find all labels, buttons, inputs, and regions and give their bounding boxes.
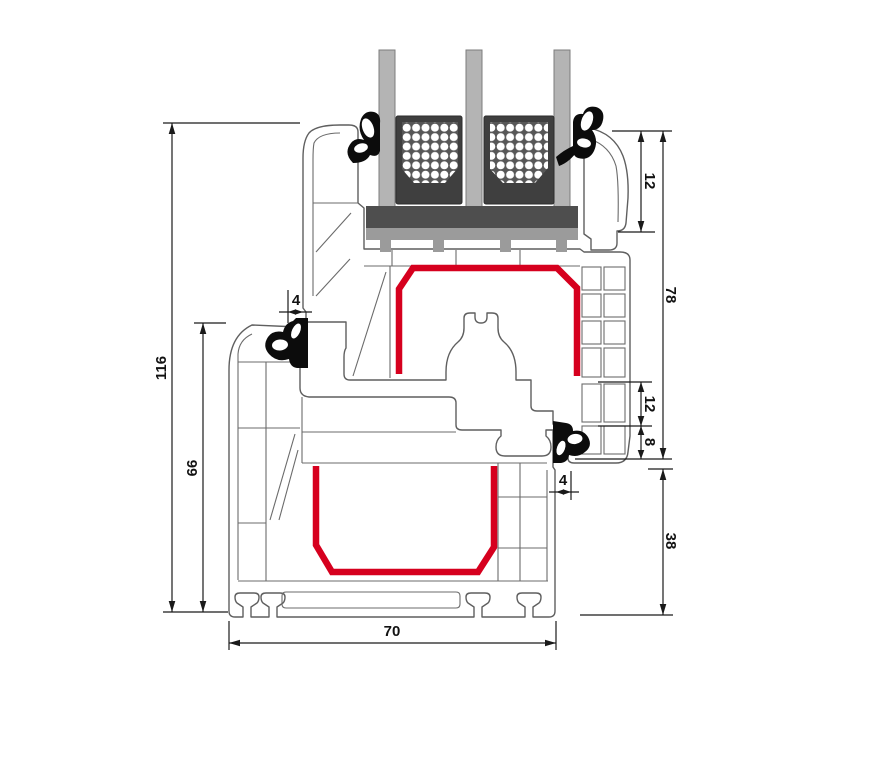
glass-pane-inner [554, 50, 570, 208]
dim-label-4-left: 4 [292, 292, 301, 309]
dim-hardware-bottom: 8 [638, 426, 658, 459]
dim-profile-width: 70 [229, 621, 556, 650]
glazing-unit [366, 50, 578, 252]
dim-label-70: 70 [384, 623, 401, 640]
cell [604, 321, 625, 344]
bridge-leg [500, 240, 511, 252]
dim-label-12-mid: 12 [641, 396, 658, 413]
spacer-right [484, 116, 554, 204]
spacer-left [396, 116, 462, 204]
desiccant-dots [490, 122, 548, 183]
dim-label-8: 8 [641, 438, 658, 446]
setting-block [366, 206, 578, 228]
drawing-canvas: 116 66 70 12 [0, 0, 877, 766]
dim-label-4-right: 4 [559, 472, 568, 489]
cell [582, 321, 601, 344]
glazing-bridge [366, 228, 578, 240]
dim-label-66: 66 [184, 460, 201, 477]
glass-pane-middle [466, 50, 482, 208]
dim-label-38: 38 [662, 533, 679, 550]
bridge-leg [433, 240, 444, 252]
bridge-leg [380, 240, 391, 252]
dim-lower-frame: 38 [580, 469, 679, 615]
dim-label-78: 78 [662, 287, 679, 304]
bridge-leg [556, 240, 567, 252]
dim-label-116: 116 [153, 356, 170, 380]
cell [582, 348, 601, 377]
cross-section-drawing: 116 66 70 12 [0, 0, 877, 766]
cell [604, 348, 625, 377]
cell [604, 384, 625, 422]
dim-label-12-top: 12 [641, 173, 658, 190]
glass-pane-outer [379, 50, 395, 208]
cell [582, 294, 601, 317]
cell [604, 267, 625, 290]
dim-frame-height: 66 [184, 323, 226, 612]
cell [582, 384, 601, 422]
desiccant-dots [402, 122, 458, 183]
cell [582, 267, 601, 290]
cell [604, 426, 625, 454]
cell [604, 294, 625, 317]
